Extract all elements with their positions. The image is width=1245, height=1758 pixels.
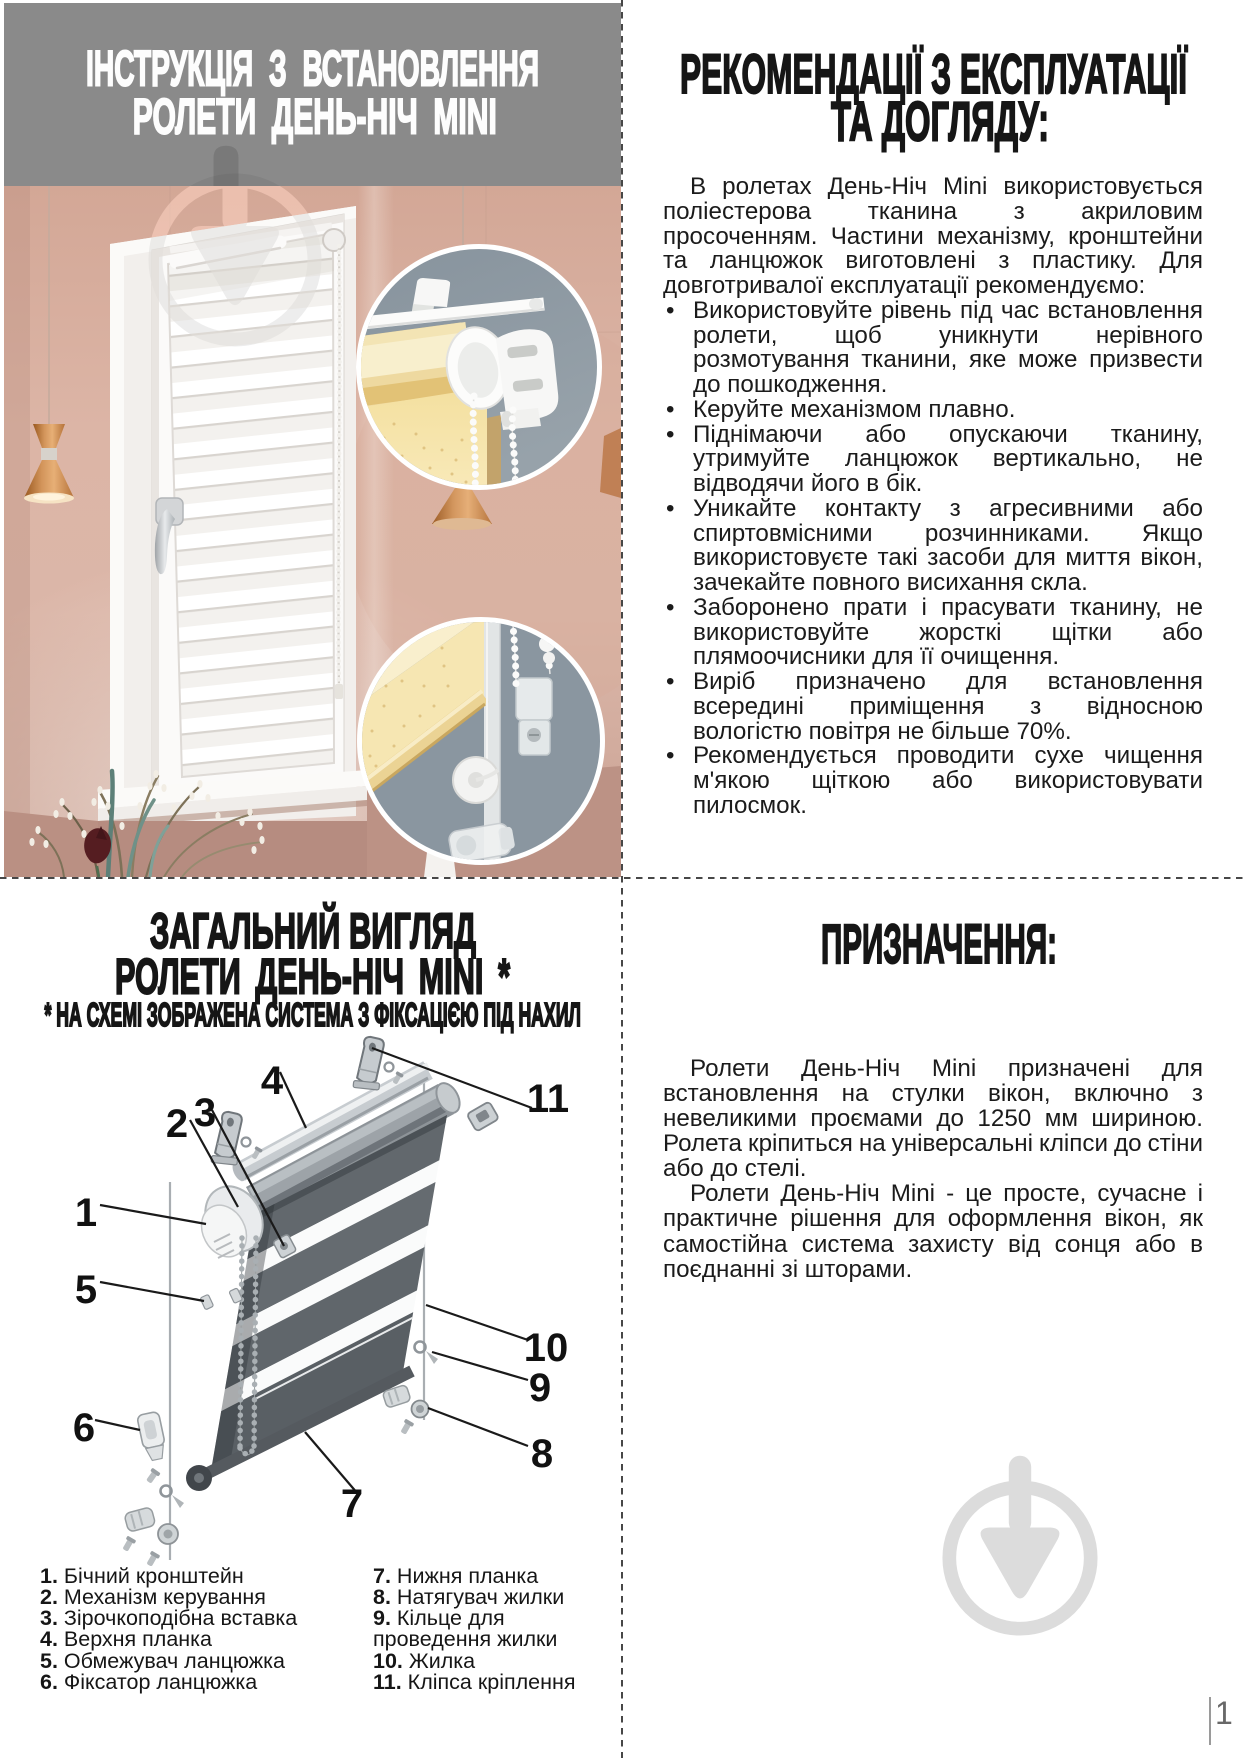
svg-text:* НА СХЕМІ ЗОБРАЖЕНА СИСТЕМА З: * НА СХЕМІ ЗОБРАЖЕНА СИСТЕМА З ФІКСАЦІЄЮ… [44,997,581,1034]
svg-text:ПРИЗНАЧЕННЯ:: ПРИЗНАЧЕННЯ: [821,912,1057,975]
svg-text:ТА ДОГЛЯДУ:: ТА ДОГЛЯДУ: [831,89,1049,152]
svg-text:РОЛЕТИ ДЕНЬ-НІЧ MINI: РОЛЕТИ ДЕНЬ-НІЧ MINI [133,89,497,145]
